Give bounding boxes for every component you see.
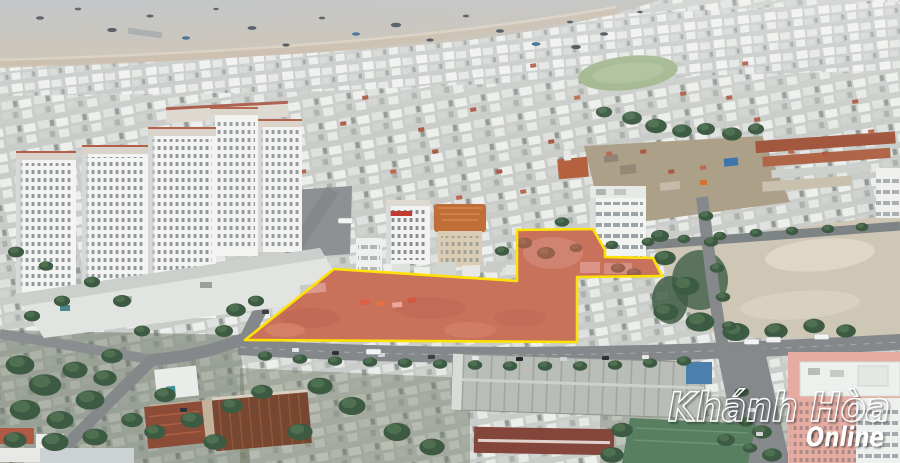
blue-shed: [686, 362, 712, 384]
gray-shed: [24, 448, 134, 463]
screenshot-root: Khánh Hòa Online: [0, 0, 900, 463]
tower: [16, 151, 76, 294]
orange-roof-building: [434, 204, 486, 267]
hotel-building: [386, 200, 430, 264]
atmospheric-haze: [0, 0, 900, 140]
hotel-sign: [390, 211, 412, 216]
colonnade-building: [474, 427, 614, 455]
excavator: [700, 180, 707, 185]
blue-tarp: [724, 157, 739, 166]
aerial-photo: Khánh Hòa Online: [0, 0, 900, 463]
watermark-subtitle: Online: [806, 422, 884, 453]
